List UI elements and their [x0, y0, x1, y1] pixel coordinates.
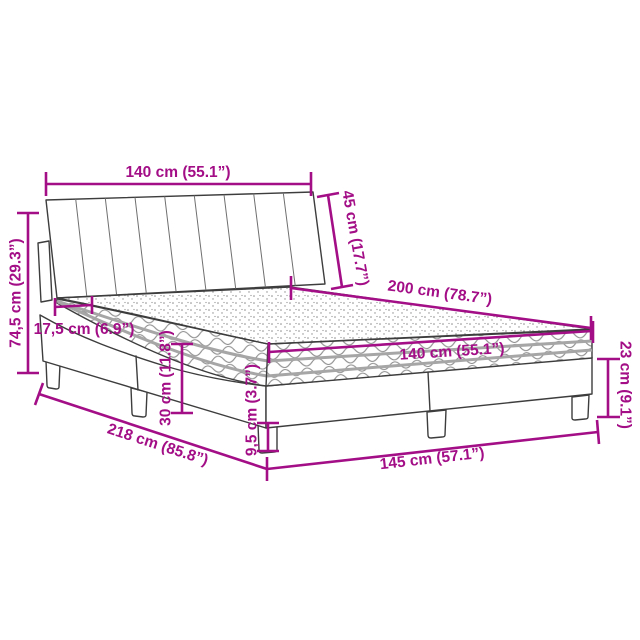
dim-headboard-width: 140 cm (55.1”)	[46, 164, 311, 196]
bed-leg	[572, 395, 589, 420]
dim-overall-height: 74,5 cm (29.3”)	[7, 213, 39, 373]
headboard-side-strip	[38, 241, 52, 302]
dim-label-base-height: 23 cm (9.1”)	[617, 341, 634, 429]
bed-leg	[427, 410, 446, 438]
bed-leg	[131, 388, 147, 417]
dim-label-mattress-inset: 17,5 cm (6.9”)	[34, 321, 135, 338]
dim-label-headboard-height: 45 cm (17.7”)	[338, 189, 371, 287]
dim-headboard-height: 45 cm (17.7”)	[317, 189, 372, 289]
dim-label-overall-height: 74,5 cm (29.3”)	[7, 238, 24, 347]
dim-base-height: 23 cm (9.1”)	[597, 341, 634, 429]
bed-dimension-diagram: 140 cm (55.1”) 45 cm (17.7”) 74,5 cm (29…	[0, 0, 640, 640]
dim-label-overall-width: 145 cm (57.1”)	[379, 445, 485, 474]
dim-label-headboard-width: 140 cm (55.1”)	[125, 164, 230, 181]
dim-label-leg-height: 9,5 cm (3.7”)	[243, 364, 260, 456]
headboard	[38, 192, 325, 302]
dim-label-mattress-height: 30 cm (11.8”)	[157, 330, 174, 426]
headboard-panel	[46, 192, 325, 298]
dim-tick	[597, 420, 599, 444]
dim-line	[328, 195, 342, 287]
bed-dimension-diagram-page: 140 cm (55.1”) 45 cm (17.7”) 74,5 cm (29…	[0, 0, 640, 640]
